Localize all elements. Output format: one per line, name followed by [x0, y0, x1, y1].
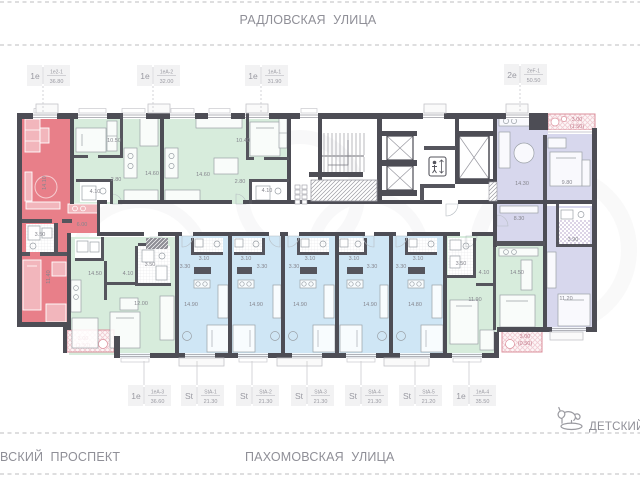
svg-text:1е2-1: 1е2-1	[50, 70, 63, 76]
svg-text:35.50: 35.50	[476, 399, 490, 405]
svg-text:(1.50): (1.50)	[570, 124, 585, 130]
svg-text:РАДЛОВСКАЯ УЛИЦА: РАДЛОВСКАЯ УЛИЦА	[240, 13, 377, 27]
svg-text:4.10: 4.10	[123, 271, 134, 277]
svg-text:36.60: 36.60	[151, 399, 165, 405]
svg-text:1еА-1: 1еА-1	[268, 70, 282, 76]
svg-text:St: St	[185, 391, 194, 401]
svg-text:2е: 2е	[507, 70, 517, 80]
svg-text:StА-2: StА-2	[259, 390, 272, 396]
svg-text:St: St	[240, 391, 249, 401]
svg-text:14.10: 14.10	[42, 176, 48, 190]
svg-text:11.20: 11.20	[559, 296, 572, 302]
svg-text:2еF-1: 2еF-1	[527, 69, 540, 75]
svg-text:14.90: 14.90	[184, 302, 198, 308]
svg-text:21.20: 21.20	[422, 399, 436, 405]
svg-text:14.90: 14.90	[293, 302, 307, 308]
svg-text:14.60: 14.60	[196, 172, 210, 178]
svg-text:36.80: 36.80	[50, 79, 64, 85]
svg-text:(0.50): (0.50)	[518, 341, 533, 347]
svg-text:1е: 1е	[131, 391, 141, 401]
svg-text:3.50: 3.50	[35, 232, 46, 238]
svg-text:10.40: 10.40	[236, 138, 250, 144]
svg-text:1е: 1е	[140, 71, 150, 81]
svg-text:StА-4: StА-4	[368, 390, 381, 396]
svg-text:14.60: 14.60	[145, 171, 159, 177]
svg-text:3.30: 3.30	[367, 264, 378, 270]
svg-text:3.50: 3.50	[456, 261, 467, 267]
svg-text:St: St	[349, 391, 358, 401]
svg-text:ДЕТСКИЙ: ДЕТСКИЙ	[589, 420, 640, 433]
svg-text:4.10: 4.10	[479, 270, 490, 276]
svg-text:12.00: 12.00	[134, 301, 148, 307]
svg-text:10.50: 10.50	[107, 138, 121, 144]
svg-text:9.80: 9.80	[562, 180, 573, 186]
svg-text:3.50: 3.50	[145, 262, 156, 268]
svg-text:11.40: 11.40	[46, 270, 52, 283]
svg-text:3.10: 3.10	[349, 256, 360, 262]
svg-text:3.30: 3.30	[396, 264, 407, 270]
svg-text:21.30: 21.30	[259, 399, 273, 405]
svg-text:1е: 1е	[30, 71, 40, 81]
svg-text:2.80: 2.80	[235, 179, 246, 185]
svg-text:21.30: 21.30	[314, 399, 328, 405]
svg-text:ВСКИЙ ПРОСПЕКТ: ВСКИЙ ПРОСПЕКТ	[0, 449, 120, 464]
svg-text:14.90: 14.90	[363, 302, 377, 308]
svg-text:14.50: 14.50	[88, 271, 102, 277]
svg-text:14.80: 14.80	[408, 302, 422, 308]
svg-text:3.90: 3.90	[568, 237, 579, 243]
svg-text:St: St	[403, 391, 412, 401]
svg-text:21.30: 21.30	[204, 399, 218, 405]
svg-text:11.90: 11.90	[468, 297, 481, 303]
svg-text:St: St	[295, 391, 304, 401]
svg-text:3.00: 3.00	[572, 117, 583, 123]
svg-text:8.30: 8.30	[514, 216, 525, 222]
svg-text:14.50: 14.50	[510, 270, 524, 276]
svg-text:3.30: 3.30	[257, 264, 268, 270]
svg-text:21.30: 21.30	[368, 399, 382, 405]
svg-text:ПАХОМОВСКАЯ УЛИЦА: ПАХОМОВСКАЯ УЛИЦА	[245, 450, 395, 464]
svg-text:3.30: 3.30	[289, 264, 300, 270]
svg-text:StА-3: StА-3	[314, 390, 327, 396]
svg-text:3.10: 3.10	[241, 256, 252, 262]
svg-text:3.00: 3.00	[520, 334, 531, 340]
svg-text:2.80: 2.80	[111, 177, 122, 183]
svg-text:50.50: 50.50	[527, 78, 541, 84]
svg-text:14.90: 14.90	[249, 302, 263, 308]
svg-text:14.30: 14.30	[515, 181, 529, 187]
svg-text:1еА-3: 1еА-3	[151, 390, 165, 396]
svg-text:1е: 1е	[456, 391, 466, 401]
svg-text:StА-5: StА-5	[422, 390, 435, 396]
svg-text:6.00: 6.00	[77, 222, 88, 228]
svg-text:3.30: 3.30	[180, 264, 191, 270]
svg-text:4.10: 4.10	[90, 189, 101, 195]
svg-text:StА-1: StА-1	[204, 390, 217, 396]
svg-text:3.10: 3.10	[199, 256, 210, 262]
svg-text:32.00: 32.00	[160, 79, 174, 85]
svg-text:1е: 1е	[248, 71, 258, 81]
svg-text:3.10: 3.10	[305, 256, 316, 262]
svg-text:3.10: 3.10	[413, 256, 424, 262]
svg-text:4.10: 4.10	[262, 188, 273, 194]
svg-text:1еА-4: 1еА-4	[476, 390, 490, 396]
svg-text:1еА-2: 1еА-2	[160, 70, 174, 76]
svg-text:31.90: 31.90	[268, 79, 282, 85]
